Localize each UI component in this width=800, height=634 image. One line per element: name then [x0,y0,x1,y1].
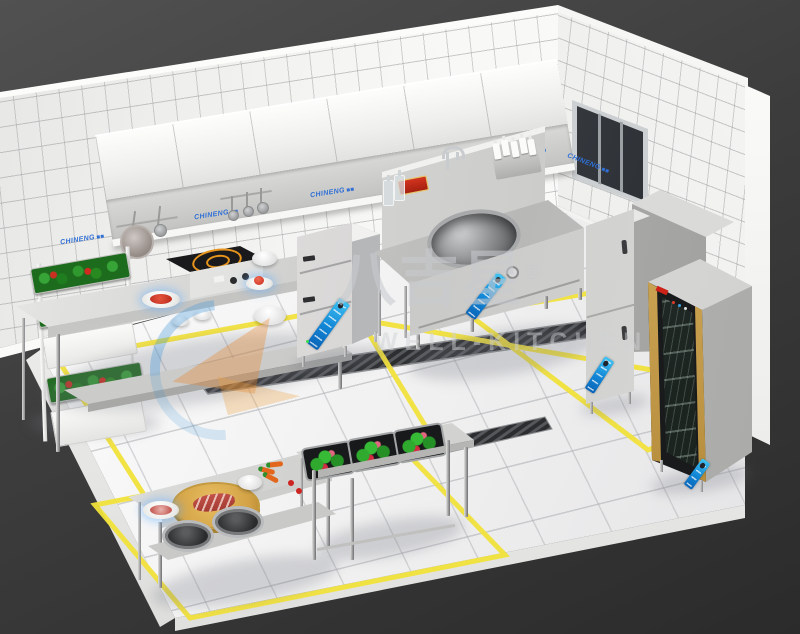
sink-leg [464,447,468,517]
sink-leg [350,478,354,560]
kitchen-3d-render: CHINENG CHINENG CHINENG CHINENG CHINENG … [0,0,800,634]
vegetable-rack [31,244,142,448]
oil-bottle [383,180,394,206]
tomato [254,276,264,285]
oil-bottle [394,175,405,201]
control-dot [684,307,687,310]
bowl [238,475,262,490]
faucet-arc [442,146,465,159]
bowl [252,251,277,266]
power-led [306,340,309,343]
disinfection-foot [700,480,703,492]
station-leg [544,296,548,309]
stock-pot [162,520,214,552]
watermark-brand-en: WELL-KITCHEN [374,328,648,357]
stock-pot [212,506,264,538]
cooker-knob [230,277,237,284]
watermark-brand-cn: 八吉星® [336,250,543,310]
fridge-foot [628,392,631,404]
table-leg [22,318,25,420]
station-leg [578,288,582,300]
fridge-foot [590,402,593,414]
chili [288,480,294,486]
control-dot [672,301,675,304]
sink-leg [312,470,316,560]
disinfection-foot [660,460,663,472]
ladle-handle [231,196,233,211]
hanging-ladle [243,206,254,217]
sliced-meat [150,505,172,515]
cabinet-foot [344,346,347,357]
hanging-ladle [228,210,239,221]
ladle-handle [260,188,262,203]
registered-mark: ® [525,262,543,284]
meat [150,294,172,304]
prep-leg [138,502,141,580]
control-dot [678,304,681,307]
watermark-cn-text: 八吉星 [336,246,525,313]
cabinet-foot [302,356,305,367]
sink-leg [446,440,450,516]
chili [296,488,302,494]
table-leg [56,334,60,452]
hanging-ladle [154,224,167,237]
hanging-ladle [257,202,269,214]
ladle-handle [246,192,248,207]
faucet-spout [456,152,459,160]
